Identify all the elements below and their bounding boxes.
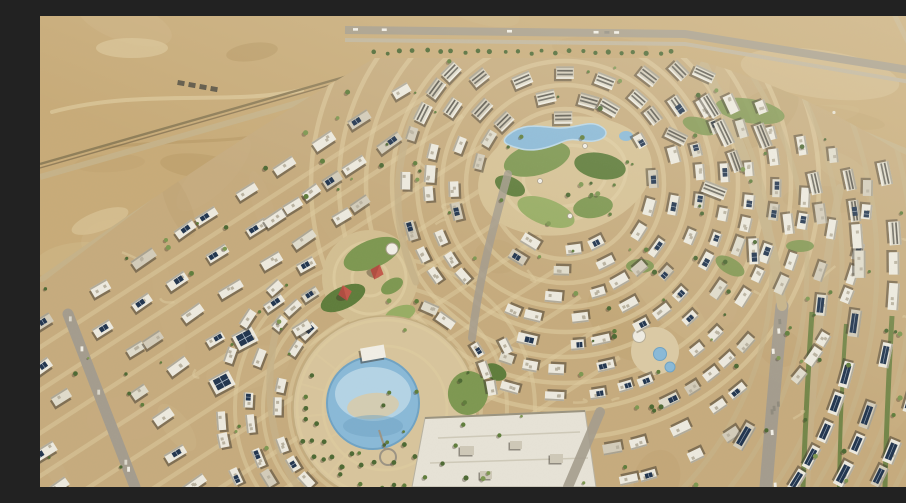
atmosphere-layer (40, 16, 906, 487)
aerial-photo: Aerial drone photograph of a large maste… (40, 16, 906, 487)
aerial-photo-canvas (40, 16, 906, 487)
